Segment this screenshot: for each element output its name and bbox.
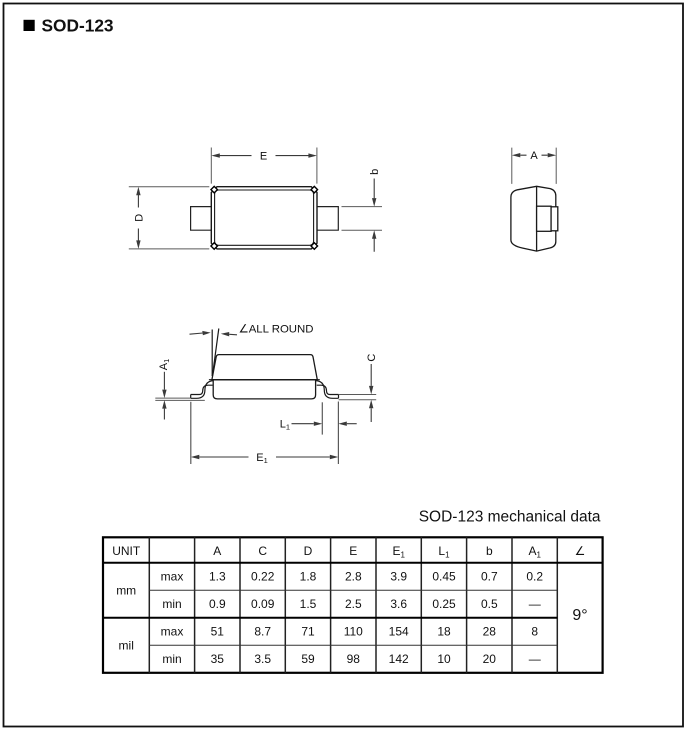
svg-text:51: 51	[211, 625, 225, 639]
svg-text:E: E	[349, 544, 357, 558]
svg-text:0.5: 0.5	[481, 597, 498, 611]
svg-text:28: 28	[483, 625, 497, 639]
svg-text:9°: 9°	[572, 607, 587, 624]
svg-text:110: 110	[344, 625, 363, 639]
svg-text:2.5: 2.5	[345, 597, 362, 611]
svg-text:C: C	[258, 544, 267, 558]
svg-text:8.7: 8.7	[254, 625, 271, 639]
svg-text:A1: A1	[528, 544, 541, 560]
svg-text:L1: L1	[280, 419, 290, 432]
svg-text:mil: mil	[119, 639, 134, 653]
svg-text:C: C	[366, 354, 378, 362]
svg-text:mm: mm	[116, 584, 136, 598]
svg-text:3.5: 3.5	[254, 652, 271, 666]
svg-text:max: max	[161, 625, 184, 639]
svg-text:A: A	[530, 150, 538, 162]
svg-text:0.09: 0.09	[251, 597, 275, 611]
svg-text:D: D	[133, 214, 145, 222]
svg-text:142: 142	[389, 652, 409, 666]
svg-text:71: 71	[301, 625, 315, 639]
svg-text:0.7: 0.7	[481, 570, 498, 584]
svg-text:2.8: 2.8	[345, 570, 362, 584]
svg-text:20: 20	[483, 652, 497, 666]
svg-text:L1: L1	[438, 544, 450, 560]
svg-text:0.45: 0.45	[432, 570, 456, 584]
svg-text:1.3: 1.3	[209, 570, 226, 584]
svg-text:A: A	[213, 544, 221, 558]
svg-text:59: 59	[301, 652, 315, 666]
svg-text:b: b	[486, 544, 493, 558]
svg-text:0.22: 0.22	[251, 570, 275, 584]
svg-text:35: 35	[211, 652, 225, 666]
svg-text:3.9: 3.9	[390, 570, 407, 584]
svg-text:154: 154	[389, 625, 409, 639]
svg-text:0.9: 0.9	[209, 597, 226, 611]
svg-text:min: min	[162, 652, 181, 666]
svg-text:∠: ∠	[575, 544, 586, 558]
svg-text:D: D	[304, 544, 313, 558]
svg-text:—: —	[529, 652, 541, 666]
svg-text:∠ALL ROUND: ∠ALL ROUND	[239, 323, 314, 335]
svg-text:98: 98	[347, 652, 361, 666]
svg-text:18: 18	[437, 625, 451, 639]
svg-text:8: 8	[531, 625, 538, 639]
svg-text:E: E	[260, 151, 267, 163]
svg-text:A1: A1	[158, 359, 171, 371]
svg-text:0.25: 0.25	[432, 597, 456, 611]
svg-text:UNIT: UNIT	[112, 544, 141, 558]
svg-text:3.6: 3.6	[390, 597, 407, 611]
svg-text:E1: E1	[392, 544, 405, 560]
svg-text:10: 10	[437, 652, 451, 666]
svg-text:1.8: 1.8	[300, 570, 317, 584]
svg-text:0.2: 0.2	[526, 570, 543, 584]
svg-text:SOD-123 mechanical data: SOD-123 mechanical data	[419, 508, 601, 525]
svg-text:E1: E1	[256, 452, 268, 465]
svg-text:1.5: 1.5	[300, 597, 317, 611]
svg-text:—: —	[529, 597, 541, 611]
svg-text:b: b	[369, 169, 381, 175]
svg-text:min: min	[162, 597, 181, 611]
svg-text:SOD-123: SOD-123	[42, 16, 114, 36]
svg-text:max: max	[161, 570, 184, 584]
